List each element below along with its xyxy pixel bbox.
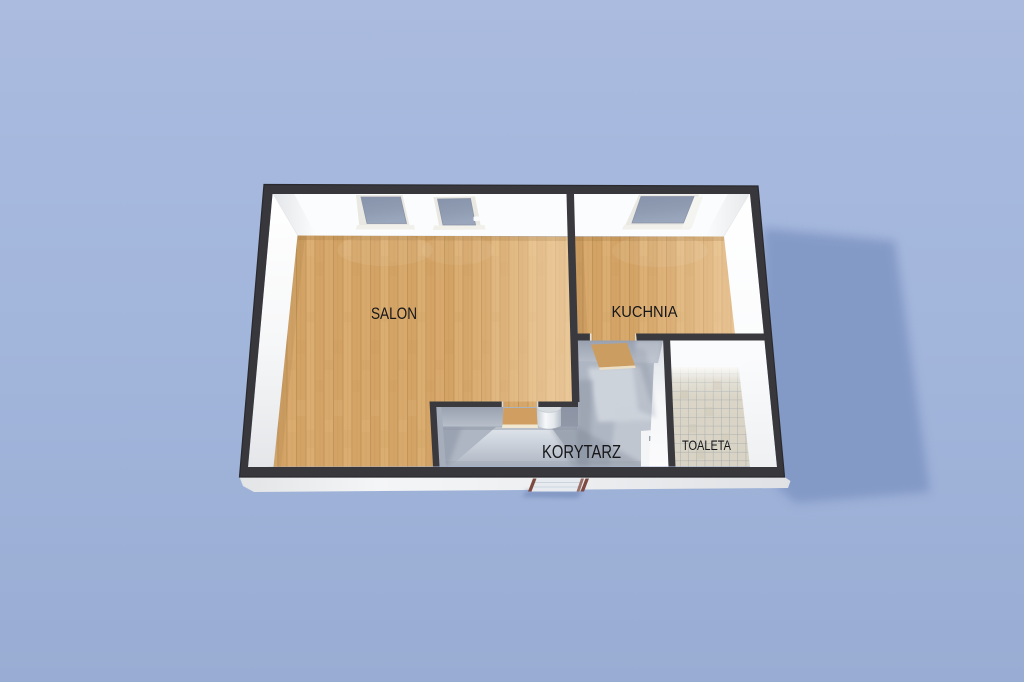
svg-text:TOALETA: TOALETA — [682, 438, 732, 453]
svg-text:SALON: SALON — [371, 305, 417, 323]
svg-text:KORYTARZ: KORYTARZ — [542, 442, 621, 462]
svg-text:KUCHNIA: KUCHNIA — [612, 304, 679, 321]
